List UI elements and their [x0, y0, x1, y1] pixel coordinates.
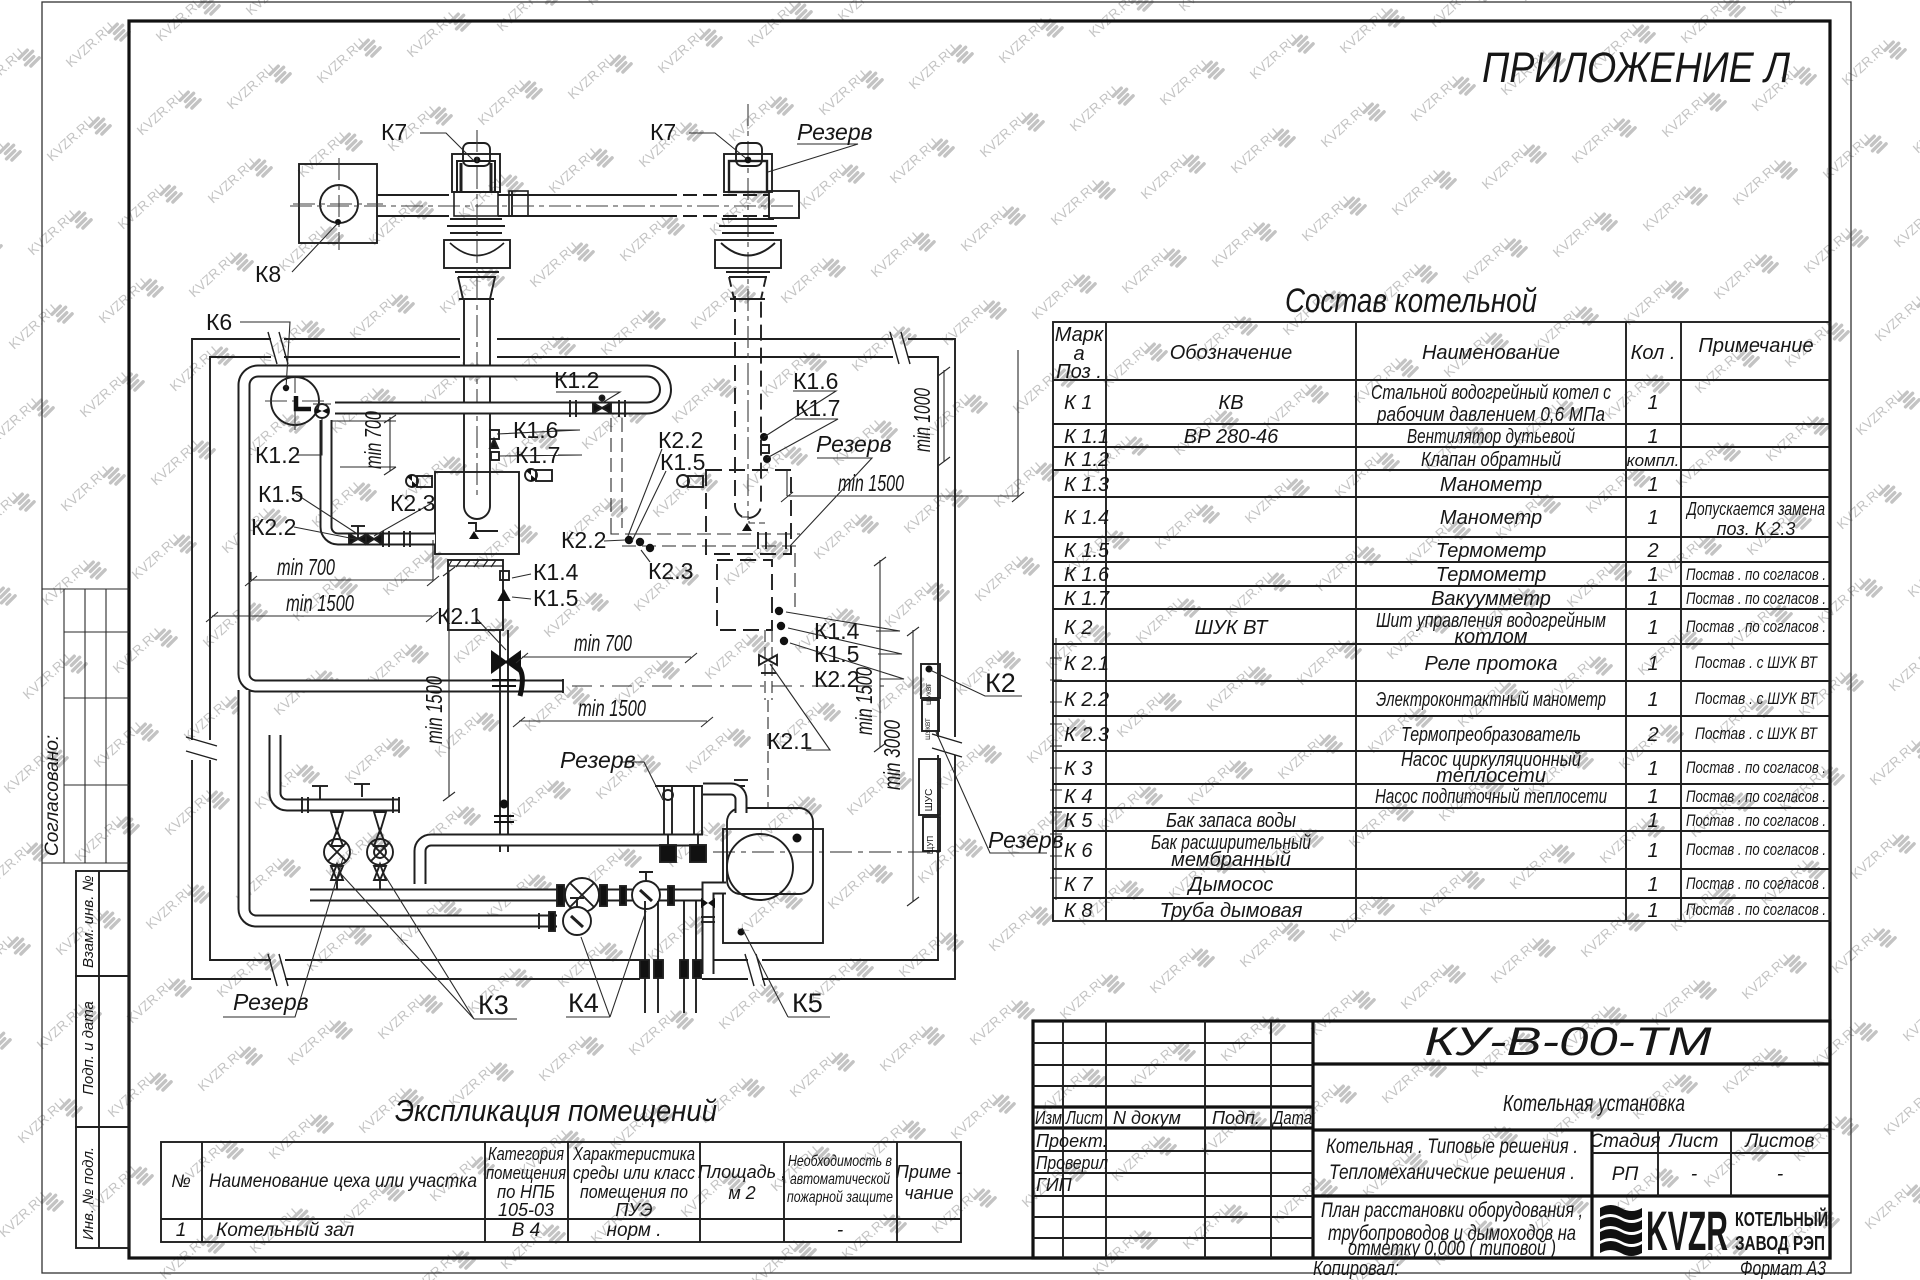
svg-text:Изм: Изм	[1035, 1108, 1062, 1128]
svg-text:К 1.6: К 1.6	[1064, 564, 1110, 586]
svg-text:отметку 0,000 ( типовой ): отметку 0,000 ( типовой )	[1348, 1237, 1556, 1260]
svg-text:min 700: min 700	[360, 411, 386, 469]
svg-text:К2.1: К2.1	[437, 603, 482, 629]
svg-text:ШУК ВТ: ШУК ВТ	[1195, 617, 1270, 639]
svg-text:Постав . с ШУК ВТ: Постав . с ШУК ВТ	[1695, 690, 1819, 708]
svg-text:К2.3: К2.3	[648, 558, 693, 584]
svg-text:min 700: min 700	[574, 630, 632, 656]
svg-text:РП: РП	[1612, 1164, 1639, 1185]
svg-text:Постав . по согласов .: Постав . по согласов .	[1686, 812, 1826, 830]
svg-text:чание: чание	[904, 1183, 953, 1203]
svg-text:Постав . по согласов .: Постав . по согласов .	[1686, 875, 1826, 893]
svg-text:Тепломеханические решения .: Тепломеханические решения .	[1329, 1161, 1575, 1184]
svg-text:Подп. и дата: Подп. и дата	[80, 1001, 97, 1095]
svg-text:поз. К 2.3: поз. К 2.3	[1717, 519, 1796, 539]
svg-text:Постав . по согласов .: Постав . по согласов .	[1686, 841, 1826, 859]
svg-text:1: 1	[1647, 758, 1658, 780]
svg-text:К1.6: К1.6	[513, 417, 558, 443]
svg-text:1: 1	[1647, 507, 1658, 529]
svg-text:К 1.7: К 1.7	[1064, 588, 1110, 610]
svg-text:1: 1	[1647, 588, 1658, 610]
svg-text:помещения: помещения	[486, 1163, 566, 1183]
svg-text:Постав . с ШУК ВТ: Постав . с ШУК ВТ	[1695, 725, 1819, 743]
svg-text:Реле протока: Реле протока	[1425, 653, 1558, 675]
svg-text:min 1500: min 1500	[851, 667, 877, 735]
svg-text:К 2.2: К 2.2	[1064, 689, 1109, 711]
svg-text:К1.2: К1.2	[255, 442, 300, 468]
svg-text:Взам. инв. №: Взам. инв. №	[80, 875, 97, 968]
svg-text:ПУЭ: ПУЭ	[615, 1200, 652, 1220]
svg-text:К2.1: К2.1	[767, 728, 812, 754]
svg-text:Дымосос: Дымосос	[1187, 874, 1274, 896]
svg-text:1: 1	[1647, 840, 1658, 862]
svg-text:Постав . по согласов .: Постав . по согласов .	[1686, 759, 1826, 777]
svg-text:1: 1	[1647, 810, 1658, 832]
svg-text:К7: К7	[381, 119, 407, 145]
svg-text:Листов: Листов	[1743, 1131, 1814, 1152]
svg-text:1: 1	[1647, 786, 1658, 808]
svg-text:В 4: В 4	[512, 1220, 541, 1241]
svg-text:2: 2	[1646, 724, 1658, 746]
svg-text:К 5: К 5	[1064, 810, 1093, 832]
svg-text:Клапан обратный: Клапан обратный	[1421, 449, 1561, 471]
svg-text:К2.2: К2.2	[251, 514, 296, 540]
svg-text:Лист: Лист	[1065, 1108, 1103, 1128]
svg-text:№: №	[171, 1171, 191, 1191]
svg-text:котлом: котлом	[1455, 626, 1528, 648]
svg-text:пожарной защите: пожарной защите	[787, 1189, 893, 1206]
svg-text:min 1000: min 1000	[909, 388, 935, 452]
svg-text:Состав котельной: Состав котельной	[1285, 282, 1537, 320]
svg-text:105-03: 105-03	[498, 1200, 554, 1220]
svg-text:норм .: норм .	[607, 1220, 662, 1241]
svg-text:Поз .: Поз .	[1056, 361, 1102, 383]
svg-text:План расстановки оборудования: План расстановки оборудования ,	[1321, 1199, 1583, 1222]
svg-text:1: 1	[1647, 564, 1658, 586]
svg-text:К 1.5: К 1.5	[1064, 540, 1110, 562]
svg-text:среды или класс: среды или класс	[573, 1163, 695, 1183]
svg-text:min 1500: min 1500	[578, 695, 646, 721]
svg-text:1: 1	[1647, 653, 1658, 675]
svg-text:Термометр: Термометр	[1436, 540, 1547, 562]
svg-text:-: -	[1691, 1164, 1697, 1185]
svg-text:ЩУП: ЩУП	[926, 836, 935, 855]
svg-text:К1.5: К1.5	[814, 641, 859, 667]
svg-text:К6: К6	[206, 309, 232, 335]
svg-text:КВ: КВ	[1218, 392, 1243, 414]
svg-text:Резерв: Резерв	[233, 989, 309, 1015]
svg-text:min 3000: min 3000	[879, 720, 905, 790]
svg-text:по НПБ: по НПБ	[497, 1182, 555, 1202]
svg-text:К 3: К 3	[1064, 758, 1092, 780]
svg-text:К8: К8	[255, 261, 281, 287]
svg-text:1: 1	[1647, 617, 1658, 639]
svg-text:мембранный: мембранный	[1171, 849, 1291, 871]
svg-text:Постав . с ШУК ВТ: Постав . с ШУК ВТ	[1695, 654, 1819, 672]
svg-text:К2: К2	[985, 668, 1016, 698]
svg-text:ПРИЛОЖЕНИЕ Л: ПРИЛОЖЕНИЕ Л	[1482, 44, 1790, 92]
svg-text:1: 1	[1647, 426, 1658, 448]
svg-text:Постав . по согласов .: Постав . по согласов .	[1686, 590, 1826, 608]
svg-text:Проверил: Проверил	[1036, 1153, 1108, 1173]
svg-text:К 1.1: К 1.1	[1064, 426, 1109, 448]
svg-text:Постав . по согласов .: Постав . по согласов .	[1686, 788, 1826, 806]
svg-text:К 1.3: К 1.3	[1064, 474, 1109, 496]
svg-text:К2.2: К2.2	[561, 527, 606, 553]
svg-text:К1.5: К1.5	[258, 481, 303, 507]
svg-text:К 1.2: К 1.2	[1064, 449, 1109, 471]
svg-text:Площадь ,: Площадь ,	[698, 1162, 786, 1182]
svg-text:К2.3: К2.3	[390, 490, 435, 516]
svg-text:КОТЕЛЬНЫЙ: КОТЕЛЬНЫЙ	[1735, 1207, 1828, 1231]
svg-text:Формат А3: Формат А3	[1740, 1258, 1826, 1280]
svg-text:1: 1	[176, 1220, 187, 1241]
svg-text:Вентилятор дутьевой: Вентилятор дутьевой	[1407, 426, 1575, 448]
svg-text:ГИП: ГИП	[1036, 1175, 1073, 1195]
svg-text:К 8: К 8	[1064, 900, 1092, 922]
svg-text:ВР 280-46: ВР 280-46	[1184, 426, 1279, 448]
svg-text:Труба дымовая: Труба дымовая	[1160, 900, 1303, 922]
svg-text:ШУС: ШУС	[924, 789, 935, 812]
svg-text:KVZR: KVZR	[1646, 1199, 1728, 1262]
svg-text:Инв. № подл.: Инв. № подл.	[80, 1147, 97, 1240]
svg-text:Кол .: Кол .	[1631, 342, 1676, 364]
svg-text:Лист: Лист	[1668, 1131, 1719, 1152]
svg-text:К1.5: К1.5	[660, 449, 705, 475]
svg-text:К1.7: К1.7	[795, 395, 840, 421]
svg-text:1: 1	[1647, 874, 1658, 896]
svg-text:К1.7: К1.7	[515, 442, 560, 468]
svg-text:min 700: min 700	[277, 554, 335, 580]
svg-text:К 4: К 4	[1064, 786, 1092, 808]
svg-text:Постав . по согласов .: Постав . по согласов .	[1686, 901, 1826, 919]
svg-text:Необходимость в: Необходимость в	[788, 1153, 892, 1170]
svg-text:Дата: Дата	[1271, 1108, 1312, 1128]
svg-text:Постав . по согласов .: Постав . по согласов .	[1686, 618, 1826, 636]
svg-text:К 1: К 1	[1064, 392, 1092, 414]
svg-text:1: 1	[1647, 900, 1658, 922]
svg-text:рабочим давлением 0,6 МПа: рабочим давлением 0,6 МПа	[1376, 404, 1605, 426]
svg-text:Постав . по согласов .: Постав . по согласов .	[1686, 566, 1826, 584]
svg-text:К5: К5	[792, 988, 823, 1018]
svg-text:Примечание: Примечание	[1698, 335, 1813, 357]
svg-text:1: 1	[1647, 474, 1658, 496]
svg-text:Наименование: Наименование	[1422, 342, 1560, 364]
svg-text:КУ-В-00-ТМ: КУ-В-00-ТМ	[1425, 1020, 1713, 1064]
svg-text:автоматической: автоматической	[790, 1171, 890, 1188]
svg-text:Приме -: Приме -	[896, 1162, 962, 1182]
svg-text:Котельная установка: Котельная установка	[1503, 1090, 1685, 1116]
svg-text:N докум: N докум	[1113, 1108, 1181, 1128]
svg-text:К3: К3	[478, 990, 509, 1020]
svg-text:ЗАВОД РЭП: ЗАВОД РЭП	[1735, 1233, 1825, 1255]
svg-text:-: -	[1777, 1164, 1783, 1185]
svg-text:Резерв: Резерв	[816, 431, 892, 457]
svg-text:Категория: Категория	[488, 1144, 564, 1164]
svg-text:Экспликация помещений: Экспликация помещений	[395, 1093, 717, 1128]
svg-text:min 1500: min 1500	[838, 470, 904, 496]
svg-text:Копировал:: Копировал:	[1313, 1258, 1399, 1280]
svg-text:Вакуумметр: Вакуумметр	[1431, 588, 1551, 610]
svg-text:теплосети: теплосети	[1436, 765, 1546, 787]
svg-text:К 1.4: К 1.4	[1064, 507, 1109, 529]
svg-text:Подп.: Подп.	[1212, 1108, 1260, 1128]
svg-text:Термометр: Термометр	[1436, 564, 1547, 586]
svg-text:Котельный зал: Котельный зал	[216, 1220, 354, 1241]
svg-text:Котельная . Типовые решения .: Котельная . Типовые решения .	[1326, 1135, 1578, 1158]
svg-text:Резерв: Резерв	[560, 747, 636, 773]
svg-text:min 1500: min 1500	[286, 590, 354, 616]
svg-text:ШУКВТ: ШУКВТ	[926, 683, 933, 705]
svg-text:Термопреобразователь: Термопреобразователь	[1401, 724, 1581, 746]
svg-text:К1.6: К1.6	[793, 368, 838, 394]
svg-text:1: 1	[1647, 689, 1658, 711]
svg-text:Наименование цеха или участк: Наименование цеха или участка	[209, 1171, 477, 1192]
svg-text:Проект.: Проект.	[1036, 1131, 1108, 1151]
svg-text:компл.: компл.	[1627, 451, 1680, 470]
svg-text:min 1500: min 1500	[421, 676, 447, 744]
svg-text:Манометр: Манометр	[1440, 507, 1542, 529]
svg-text:Согласовано:: Согласовано:	[42, 735, 63, 856]
svg-text:Бак запаса воды: Бак запаса воды	[1166, 810, 1296, 832]
svg-text:Характеристика: Характеристика	[572, 1144, 695, 1164]
svg-text:Электроконтактный манометр: Электроконтактный манометр	[1376, 689, 1606, 711]
svg-text:Стадия: Стадия	[1589, 1131, 1660, 1152]
svg-text:Обозначение: Обозначение	[1170, 342, 1293, 364]
svg-text:м 2: м 2	[728, 1183, 755, 1203]
svg-text:К 6: К 6	[1064, 840, 1093, 862]
svg-text:К1.5: К1.5	[533, 585, 578, 611]
svg-text:К4: К4	[568, 988, 599, 1018]
svg-text:Допускается замена: Допускается замена	[1685, 499, 1825, 519]
svg-text:ШУКВТ: ШУКВТ	[925, 718, 932, 740]
svg-text:помещения по: помещения по	[580, 1182, 688, 1202]
svg-text:Стальной водогрейный котел с: Стальной водогрейный котел с	[1371, 382, 1611, 404]
svg-text:К 2: К 2	[1064, 617, 1092, 639]
svg-text:Манометр: Манометр	[1440, 474, 1542, 496]
svg-text:1: 1	[1647, 392, 1658, 414]
svg-text:Резерв: Резерв	[797, 119, 873, 145]
svg-text:2: 2	[1646, 540, 1658, 562]
svg-text:Насос подпиточный теплосети: Насос подпиточный теплосети	[1375, 786, 1607, 808]
svg-text:К1.4: К1.4	[533, 559, 579, 585]
svg-text:-: -	[837, 1220, 843, 1241]
svg-text:К 2.3: К 2.3	[1064, 724, 1109, 746]
svg-text:К 7: К 7	[1064, 874, 1093, 896]
svg-text:К1.2: К1.2	[554, 367, 599, 393]
svg-text:К 2.1: К 2.1	[1064, 653, 1109, 675]
svg-text:К7: К7	[650, 119, 676, 145]
